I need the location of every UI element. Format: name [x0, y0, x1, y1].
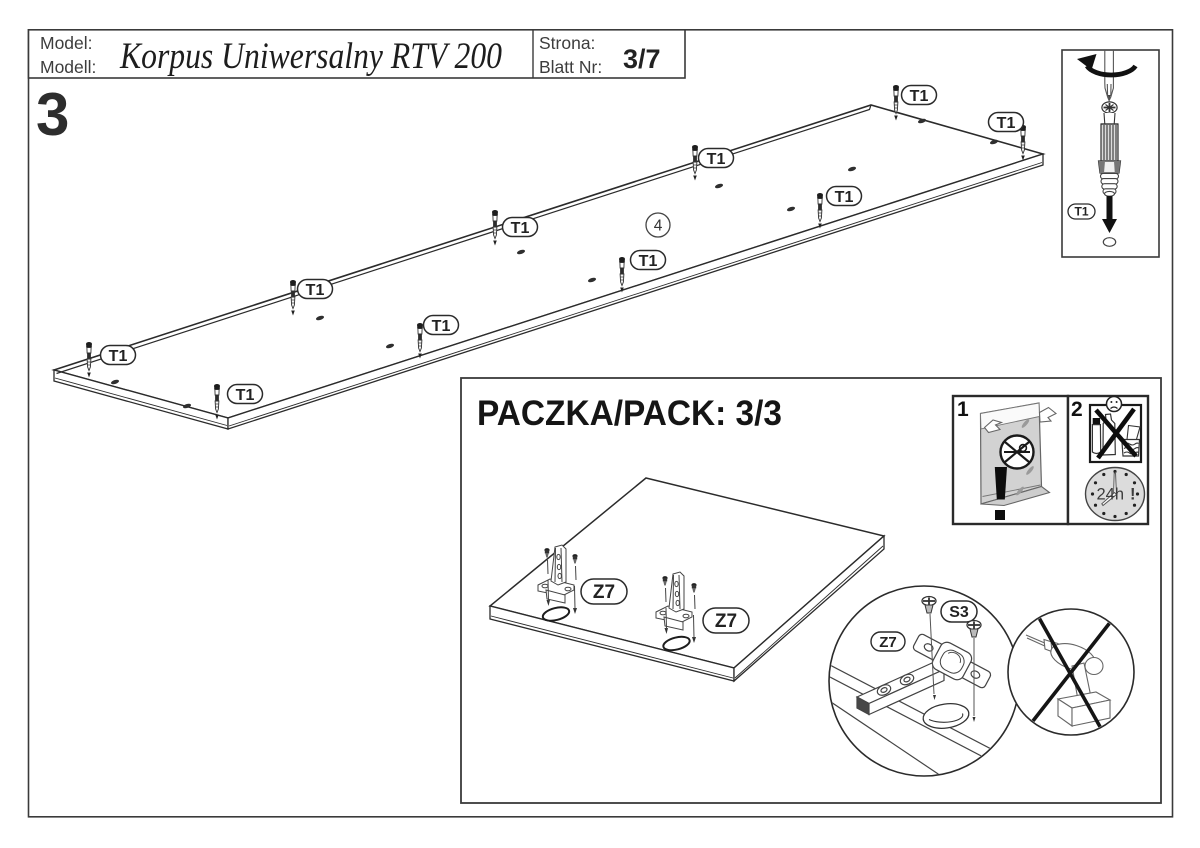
svg-text:Z7: Z7 [593, 582, 615, 603]
svg-text:T1: T1 [1074, 205, 1088, 219]
svg-text:S3: S3 [949, 604, 969, 621]
svg-text:1: 1 [957, 398, 969, 421]
svg-text:Blatt Nr:: Blatt Nr: [539, 57, 602, 77]
svg-text:Modell:: Modell: [40, 57, 96, 77]
svg-text:24h: 24h [1097, 486, 1125, 504]
svg-text:Korpus Uniwersalny RTV 200: Korpus Uniwersalny RTV 200 [119, 36, 502, 77]
svg-text:Strona:: Strona: [539, 33, 595, 53]
svg-text:Z7: Z7 [879, 634, 897, 651]
svg-text:3/7: 3/7 [623, 44, 661, 74]
svg-text:PACZKA/PACK: 3/3: PACZKA/PACK: 3/3 [477, 394, 782, 433]
svg-text:4: 4 [654, 218, 663, 235]
svg-text:!: ! [1130, 486, 1136, 504]
svg-text:3: 3 [36, 81, 69, 148]
svg-text:Model:: Model: [40, 33, 93, 53]
svg-text:2: 2 [1071, 398, 1083, 421]
svg-text:Z7: Z7 [715, 611, 737, 632]
